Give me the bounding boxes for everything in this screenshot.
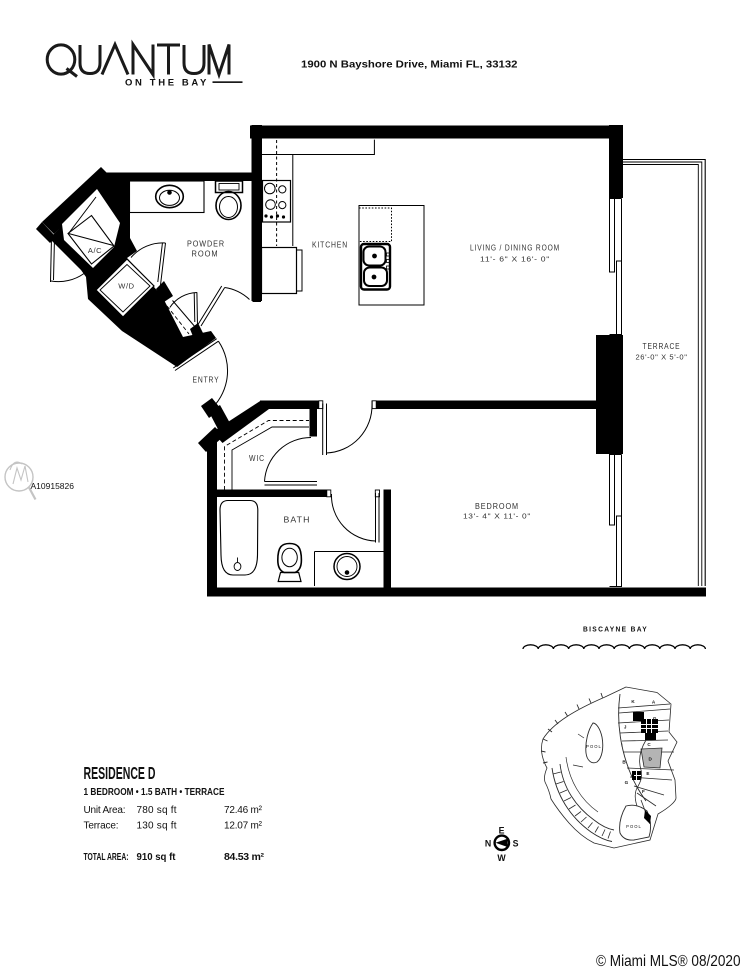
svg-text:W/D: W/D <box>118 282 134 291</box>
svg-text:72.46 m²: 72.46 m² <box>224 805 263 816</box>
svg-text:11'- 6" X 16'- 0": 11'- 6" X 16'- 0" <box>480 255 550 264</box>
svg-text:1 BEDROOM • 1.5 BATH • TERRACE: 1 BEDROOM • 1.5 BATH • TERRACE <box>84 786 225 798</box>
svg-text:ROOM: ROOM <box>192 249 219 258</box>
svg-text:Unit Area:: Unit Area: <box>84 805 126 816</box>
svg-text:ENTRY: ENTRY <box>193 376 220 385</box>
svg-text:TERRACE: TERRACE <box>643 342 681 351</box>
svg-text:I: I <box>621 743 622 748</box>
svg-text:84.53 m²: 84.53 m² <box>224 851 265 863</box>
svg-text:POOL: POOL <box>586 744 602 749</box>
svg-text:BEDROOM: BEDROOM <box>475 502 519 511</box>
svg-text:ON THE BAY: ON THE BAY <box>125 78 209 88</box>
svg-text:A10915826: A10915826 <box>31 481 75 491</box>
svg-text:1900 N Bayshore Drive, Miami F: 1900 N Bayshore Drive, Miami FL, 33132 <box>301 59 518 71</box>
svg-text:S: S <box>513 838 519 848</box>
svg-text:POOL: POOL <box>626 824 642 829</box>
svg-text:TOTAL AREA:: TOTAL AREA: <box>84 851 129 863</box>
svg-text:E: E <box>646 771 649 776</box>
svg-text:130 sq ft: 130 sq ft <box>137 821 177 832</box>
svg-text:POWDER: POWDER <box>187 240 225 249</box>
svg-text:BATH: BATH <box>284 516 311 525</box>
svg-text:KITCHEN: KITCHEN <box>312 241 348 250</box>
svg-text:© Miami MLS® 08/2020: © Miami MLS® 08/2020 <box>596 953 741 970</box>
svg-text:WIC: WIC <box>249 454 265 463</box>
svg-text:N: N <box>485 838 491 848</box>
svg-text:26'-0" X 5'-0": 26'-0" X 5'-0" <box>636 353 688 362</box>
svg-text:G: G <box>625 780 629 785</box>
svg-text:LIVING / DINING ROOM: LIVING / DINING ROOM <box>470 244 560 253</box>
svg-text:F: F <box>642 789 645 794</box>
svg-text:BISCAYNE BAY: BISCAYNE BAY <box>583 625 648 634</box>
svg-text:E: E <box>499 826 505 836</box>
svg-text:12.07 m²: 12.07 m² <box>224 821 263 832</box>
svg-text:780 sq ft: 780 sq ft <box>137 805 177 816</box>
svg-text:Terrace:: Terrace: <box>84 821 119 832</box>
svg-text:A/C: A/C <box>88 246 102 255</box>
svg-text:910 sq ft: 910 sq ft <box>137 851 176 863</box>
svg-text:J: J <box>624 725 627 730</box>
svg-text:W: W <box>497 853 506 863</box>
svg-text:RESIDENCE D: RESIDENCE D <box>84 763 156 783</box>
svg-text:13'- 4" X 11'- 0": 13'- 4" X 11'- 0" <box>463 512 531 521</box>
svg-text:G: G <box>653 716 657 721</box>
